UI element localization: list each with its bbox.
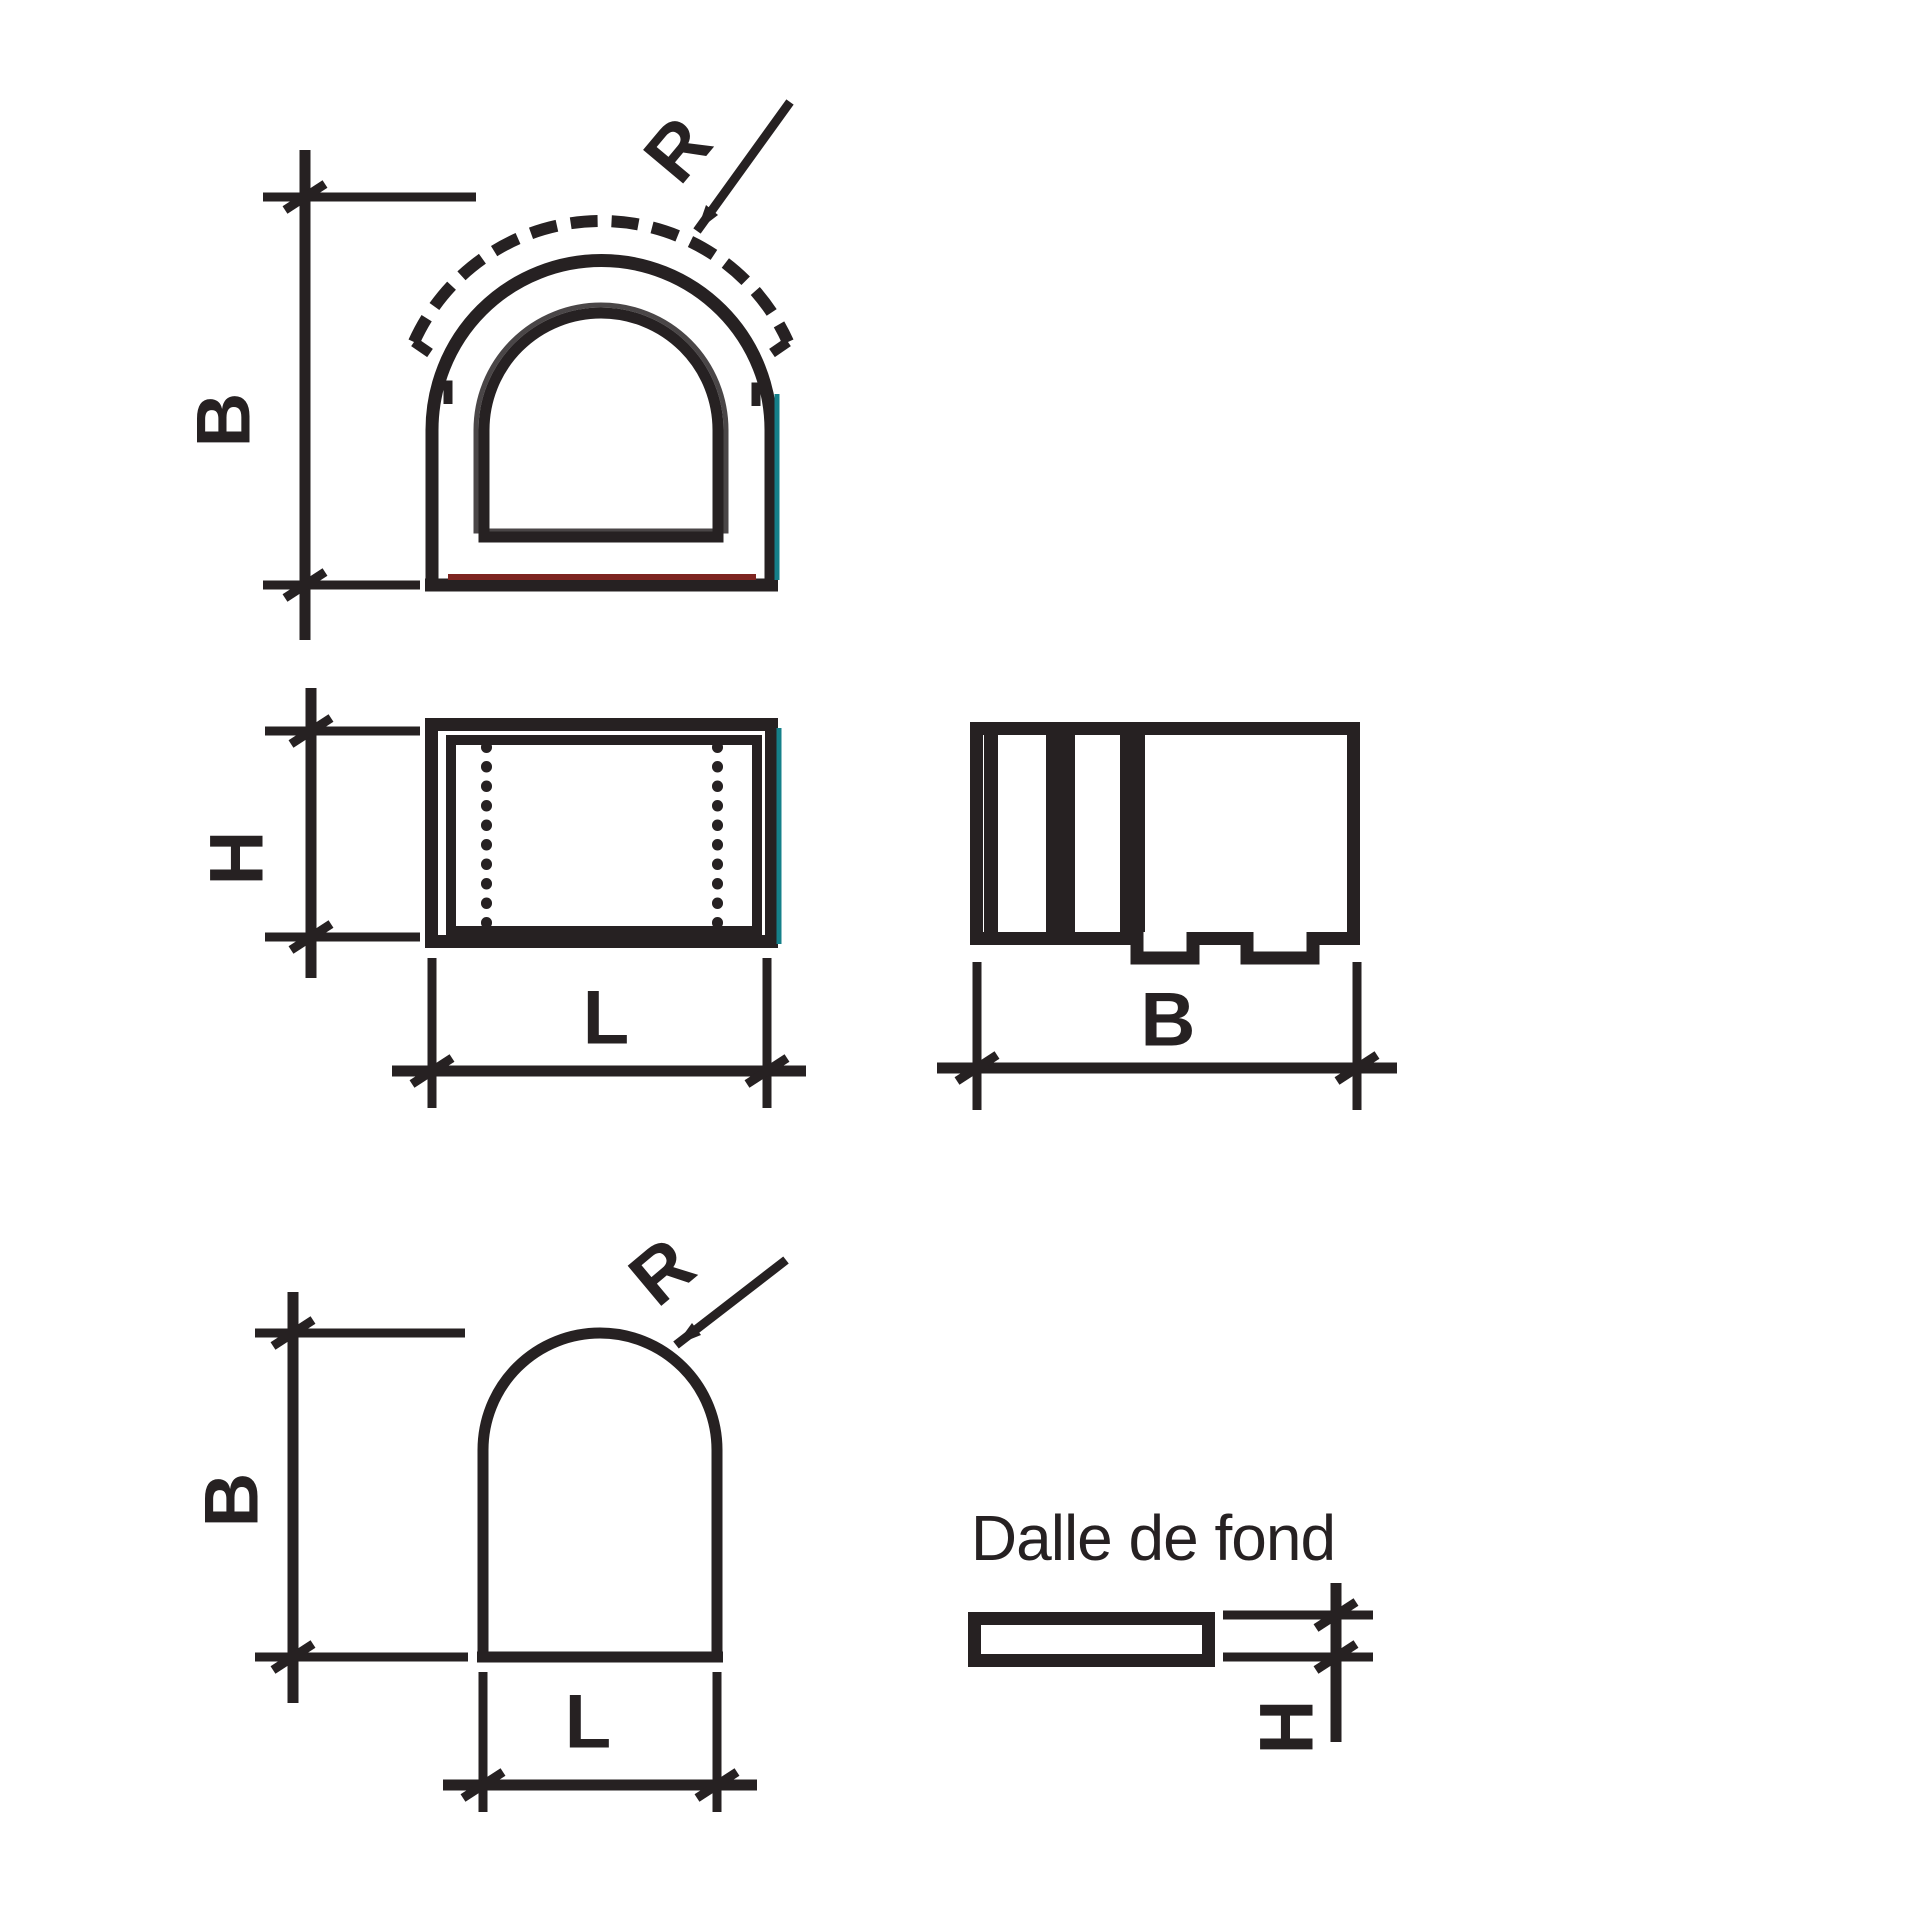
end-view-joint-band-3 bbox=[1120, 735, 1145, 932]
arch-culvert-drawing: B R H L B B R L Dalle de fond H bbox=[0, 0, 1920, 1920]
front-view-joint-recess-line bbox=[476, 305, 726, 531]
side-view-inner-rect bbox=[451, 740, 757, 931]
end-view-joint-band-1 bbox=[984, 735, 998, 932]
bottom-slab-rect bbox=[975, 1619, 1209, 1661]
side-view bbox=[265, 688, 806, 1108]
front-view-inner-opening bbox=[484, 313, 718, 537]
front-view-label-b: B bbox=[182, 393, 267, 448]
bottom-slab-title: Dalle de fond bbox=[971, 1502, 1335, 1574]
technical-drawing-page: B R H L B B R L Dalle de fond H bbox=[0, 0, 1920, 1920]
side-view-label-l: L bbox=[583, 976, 629, 1061]
joint-arc-end-hook-right bbox=[772, 342, 788, 353]
side-view-outer-rect bbox=[432, 725, 772, 942]
end-view-outer-rect bbox=[977, 729, 1354, 939]
end-view-bottom-edge-notched bbox=[970, 939, 1360, 959]
bottom-slab-label-h: H bbox=[1245, 1700, 1330, 1755]
opening-profile-label-r: R bbox=[614, 1222, 711, 1322]
end-view-joint-band-2 bbox=[1046, 735, 1075, 932]
joint-arc-end-hook-left bbox=[414, 342, 430, 353]
front-view bbox=[263, 102, 790, 640]
filled-shapes bbox=[676, 205, 1145, 1345]
opening-profile-arch bbox=[483, 1333, 717, 1657]
opening-profile bbox=[255, 1260, 786, 1812]
front-view-label-r: R bbox=[628, 102, 728, 199]
end-view-label-b: B bbox=[1141, 978, 1196, 1063]
opening-profile-label-l: L bbox=[565, 1680, 611, 1765]
side-view-label-h: H bbox=[195, 831, 280, 886]
opening-profile-label-b: B bbox=[190, 1473, 275, 1528]
